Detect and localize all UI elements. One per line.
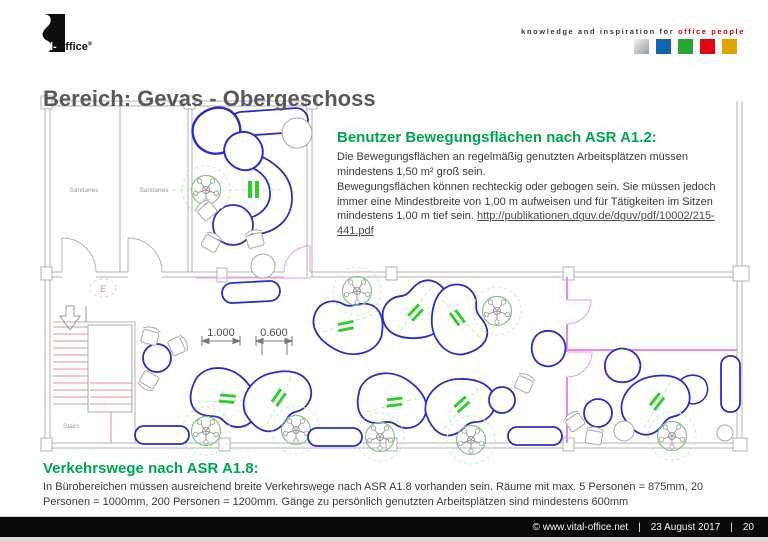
right-room-furniture	[562, 342, 740, 460]
vital-office-logo: Vital-Office®	[22, 14, 142, 56]
room-label-sanitaries-2: Sanitaries	[140, 187, 170, 194]
footer-copyright: © www.vital-office.net	[533, 522, 629, 533]
sanitaries-doors	[62, 238, 162, 272]
meeting-room-furniture	[172, 105, 312, 278]
page-title: Bereich: Gevas - Obergeschoss	[43, 86, 376, 112]
dimension-annotations: 1.000 0.600	[202, 327, 292, 355]
logo-wordmark: Vital-Office®	[30, 41, 92, 53]
info-box-para1: Die Bewegungsflächen an regelmäßig genut…	[337, 150, 739, 180]
info-box-heading: Benutzer Bewegungsflächen nach ASR A1.2:	[337, 129, 739, 146]
footer-bottom-strip	[0, 537, 768, 541]
brand-square-gold	[722, 39, 737, 54]
footer-bar: © www.vital-office.net | 23 August 2017 …	[0, 516, 768, 538]
stairs-down-arrow-icon	[60, 306, 80, 330]
brand-square-red	[700, 39, 715, 54]
footer-separator-2: |	[730, 522, 733, 533]
room-label-sanitaries-1: Sanitaries	[70, 187, 100, 194]
logo-registered-mark: ®	[88, 41, 92, 47]
logo-text-office: Office	[57, 41, 88, 53]
verkehrswege-body: In Bürobereichen müssen ausreichend brei…	[43, 480, 743, 510]
stairs	[53, 279, 135, 443]
brand-square-blue	[656, 39, 671, 54]
footer-date: 23 August 2017	[651, 522, 721, 533]
tagline-prefix: knowledge and inspiration for	[521, 27, 678, 36]
exit-label: E	[100, 284, 106, 294]
footer-page-number: 20	[743, 522, 754, 533]
verkehrswege-block: Verkehrswege nach ASR A1.8: In Büroberei…	[43, 460, 743, 510]
brand-color-squares	[634, 39, 737, 54]
brand-square-silver	[634, 39, 649, 54]
verkehrswege-heading: Verkehrswege nach ASR A1.8:	[43, 460, 743, 477]
dimension-label-0600: 0.600	[260, 327, 288, 339]
tagline: knowledge and inspiration for office peo…	[521, 27, 745, 36]
info-box-para2-wrap: Bewegungsflächen können rechteckig oder …	[337, 180, 739, 239]
slide: 1.000 0.600 Sanitaries Sanitaries S	[0, 0, 768, 541]
dimension-label-1000: 1.000	[207, 327, 235, 339]
footer-separator-1: |	[638, 522, 641, 533]
room-label-stairs: Stairs	[63, 423, 80, 430]
tagline-highlight: office people	[678, 27, 745, 36]
brand-square-green	[678, 39, 693, 54]
open-office-furniture	[135, 267, 572, 464]
info-box-asr-a12: Benutzer Bewegungsflächen nach ASR A1.2:…	[337, 129, 739, 239]
logo-text-vital: Vital-	[30, 41, 57, 53]
